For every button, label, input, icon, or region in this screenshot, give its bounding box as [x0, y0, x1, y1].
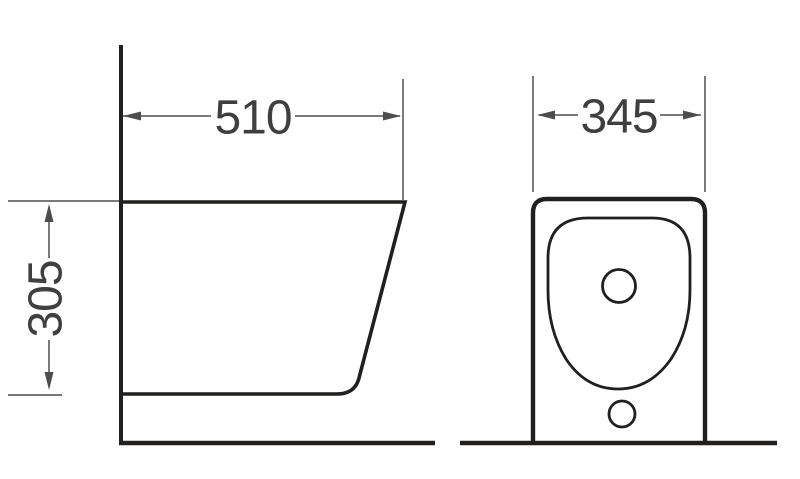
height-dimension-label: 305: [20, 260, 73, 337]
side-view-body-outline: [119, 202, 405, 394]
drain-hole-circle: [603, 270, 636, 303]
width-dimension-label: 345: [580, 91, 657, 144]
dimension-labels: 510 345 305: [20, 91, 658, 338]
arrow-left-icon: [123, 112, 141, 121]
outlet-hole-circle: [609, 401, 635, 427]
arrow-down-icon: [45, 372, 54, 390]
technical-drawing: 510 345 305: [0, 0, 800, 479]
arrow-up-icon: [45, 204, 54, 222]
drawing-canvas: 510 345 305: [0, 0, 800, 479]
front-view-body-outline: [533, 199, 705, 443]
arrow-left-icon: [537, 111, 555, 120]
dimension-arrowheads: [45, 111, 702, 391]
arrow-right-icon: [383, 112, 401, 121]
depth-dimension-label: 510: [214, 92, 291, 145]
arrow-right-icon: [683, 111, 701, 120]
